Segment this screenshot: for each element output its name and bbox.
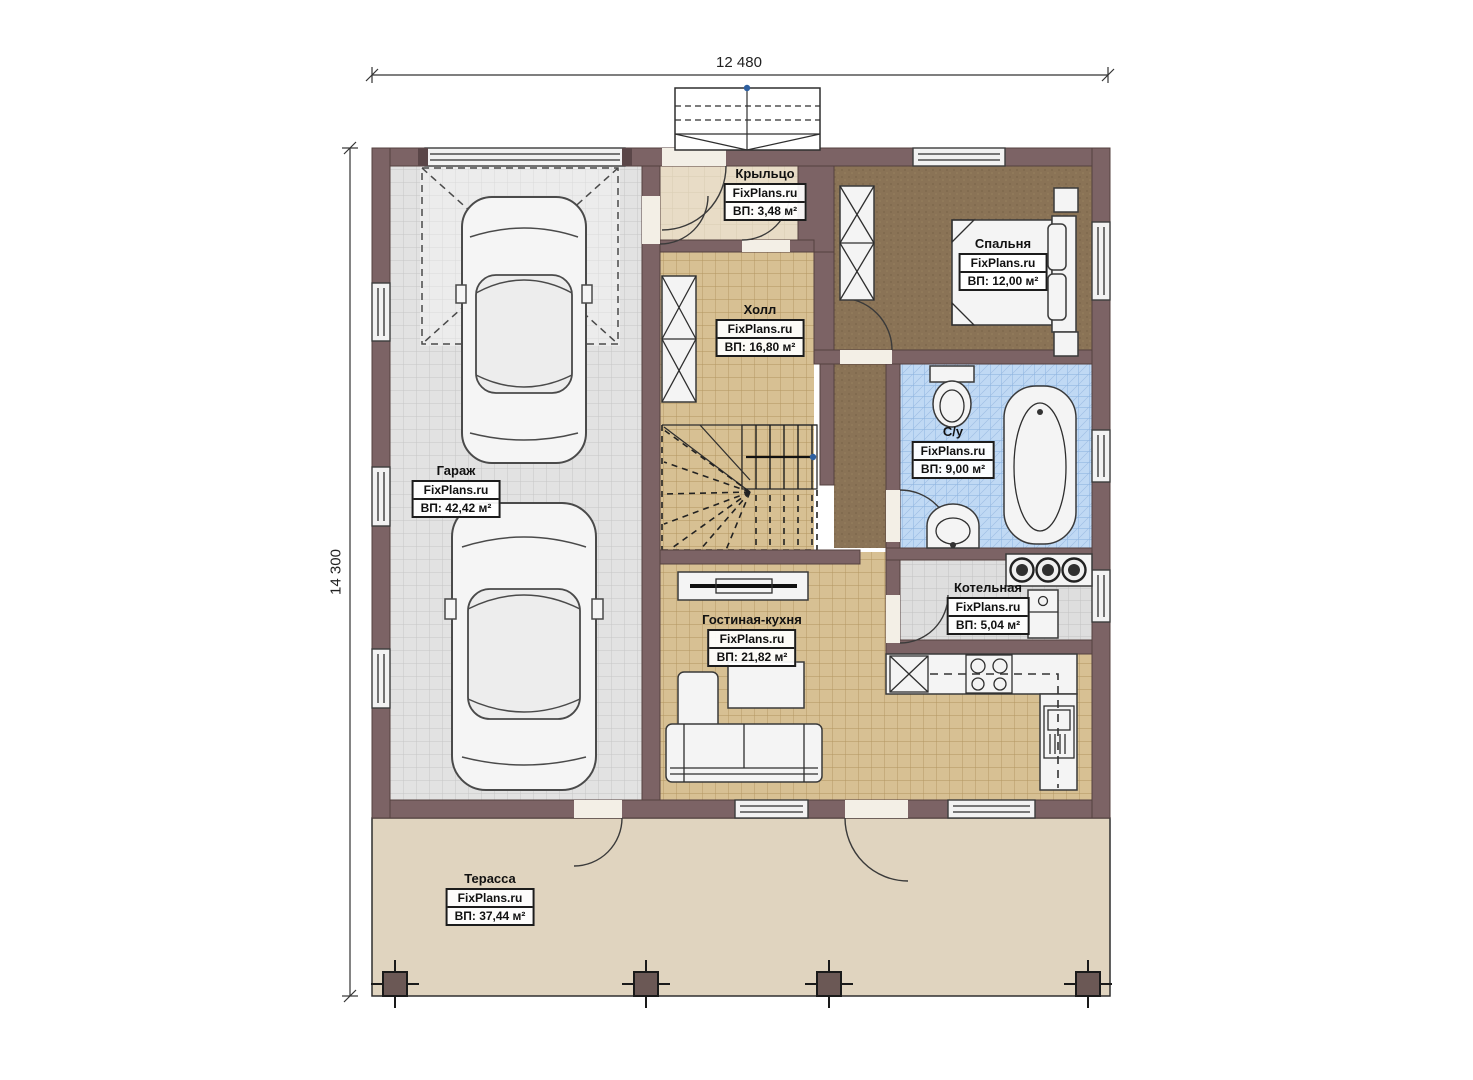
bedroom-top-window: [913, 148, 1005, 166]
floor-plan-canvas: 12 480 14 300 Крыльцо FixPlans.ru ВП: 3,…: [0, 0, 1473, 1080]
area-label: ВП: 9,00 м²: [914, 461, 993, 477]
nightstand: [1054, 188, 1078, 212]
sofa: [666, 724, 822, 782]
room-name: Гараж: [412, 463, 501, 478]
nightstand: [1054, 332, 1078, 356]
room-info-box: FixPlans.ru ВП: 9,00 м²: [912, 441, 995, 479]
room-label-living: Гостиная-кухня FixPlans.ru ВП: 21,82 м²: [702, 612, 802, 667]
tv-stand: [678, 572, 808, 600]
room-name: Гостиная-кухня: [702, 612, 802, 627]
room-label-porch: Крыльцо FixPlans.ru ВП: 3,48 м²: [724, 166, 807, 221]
toilet: [930, 366, 974, 427]
room-label-bedroom: Спальня FixPlans.ru ВП: 12,00 м²: [959, 236, 1048, 291]
brand-label: FixPlans.ru: [914, 443, 993, 461]
area-label: ВП: 12,00 м²: [961, 273, 1046, 289]
brand-label: FixPlans.ru: [710, 631, 795, 649]
bathtub: [1004, 386, 1076, 544]
room-name: Терасса: [446, 871, 535, 886]
floor-plan-drawing: [0, 0, 1473, 1080]
room-label-boiler: Котельная FixPlans.ru ВП: 5,04 м²: [947, 580, 1030, 635]
brand-label: FixPlans.ru: [961, 255, 1046, 273]
area-label: ВП: 3,48 м²: [726, 203, 805, 219]
room-info-box: FixPlans.ru ВП: 37,44 м²: [446, 888, 535, 926]
room-name: Крыльцо: [724, 166, 807, 181]
entrance-steps: [675, 85, 820, 150]
garage-gate: [418, 148, 632, 166]
room-info-box: FixPlans.ru ВП: 16,80 м²: [716, 319, 805, 357]
area-label: ВП: 37,44 м²: [448, 908, 533, 924]
brand-label: FixPlans.ru: [718, 321, 803, 339]
room-name: С/у: [912, 424, 995, 439]
dimension-width-label: 12 480: [716, 54, 762, 71]
coffee-table: [728, 662, 804, 708]
brand-label: FixPlans.ru: [726, 185, 805, 203]
brand-label: FixPlans.ru: [949, 599, 1028, 617]
room-info-box: FixPlans.ru ВП: 42,42 м²: [412, 480, 501, 518]
hall-wardrobe: [662, 276, 696, 402]
dimension-height-label: 14 300: [328, 549, 345, 595]
car-1: [456, 197, 592, 463]
room-name: Спальня: [959, 236, 1048, 251]
room-label-bathroom: С/у FixPlans.ru ВП: 9,00 м²: [912, 424, 995, 479]
bathroom-sink: [927, 504, 979, 548]
room-label-hall: Холл FixPlans.ru ВП: 16,80 м²: [716, 302, 805, 357]
area-label: ВП: 42,42 м²: [414, 500, 499, 516]
room-label-garage: Гараж FixPlans.ru ВП: 42,42 м²: [412, 463, 501, 518]
room-name: Котельная: [947, 580, 1030, 595]
brand-label: FixPlans.ru: [448, 890, 533, 908]
room-name: Холл: [716, 302, 805, 317]
car-2: [445, 503, 603, 790]
area-label: ВП: 5,04 м²: [949, 617, 1028, 633]
area-label: ВП: 16,80 м²: [718, 339, 803, 355]
room-label-terrace: Терасса FixPlans.ru ВП: 37,44 м²: [446, 871, 535, 926]
bedroom-wardrobe: [840, 186, 874, 300]
corridor-floor: [834, 364, 886, 548]
brand-label: FixPlans.ru: [414, 482, 499, 500]
room-info-box: FixPlans.ru ВП: 5,04 м²: [947, 597, 1030, 635]
stair-marker-dot: [810, 454, 816, 460]
room-info-box: FixPlans.ru ВП: 21,82 м²: [708, 629, 797, 667]
room-info-box: FixPlans.ru ВП: 3,48 м²: [724, 183, 807, 221]
area-label: ВП: 21,82 м²: [710, 649, 795, 665]
room-info-box: FixPlans.ru ВП: 12,00 м²: [959, 253, 1048, 291]
steps-marker-dot: [744, 85, 750, 91]
